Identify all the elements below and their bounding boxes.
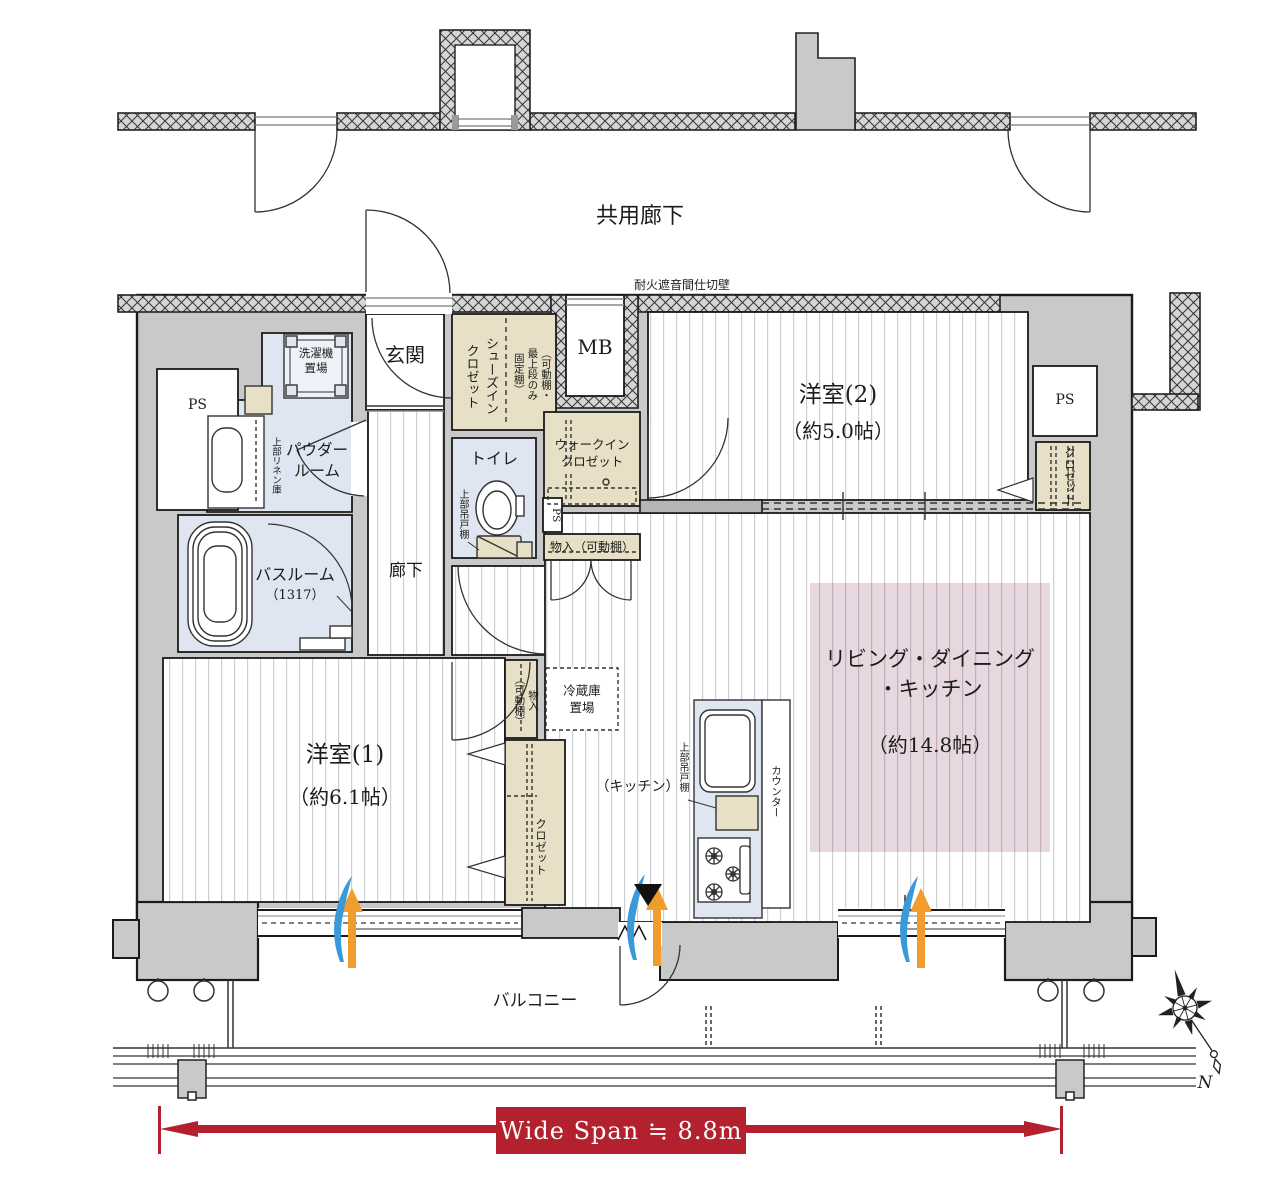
bathroom-size-label: （1317）: [225, 587, 365, 605]
compass-icon: [1148, 962, 1231, 1085]
closet-2-label: クロゼット: [524, 812, 546, 882]
western-room-2-size: （約5.0帖）: [738, 418, 938, 445]
closet-right-label: クロゼット: [1049, 444, 1075, 508]
firewall-label: 耐火遮音間仕切壁: [622, 277, 742, 293]
shared-corridor-label: 共用廊下: [565, 202, 715, 232]
storage-2-label: 物入 （可動棚）: [503, 664, 539, 736]
walk-in-closet-label: ウォークイン クロゼット: [544, 437, 640, 471]
floor-western-room-1: [163, 658, 505, 902]
entrance-front-opening: [366, 293, 452, 314]
hallway-label: 廊下: [368, 560, 444, 583]
rail-posts: [178, 1060, 1084, 1100]
ps-small-label: PS: [544, 500, 561, 530]
upper-cabinet-kitchen-label: 上部吊戸棚: [672, 728, 687, 806]
western-room-1-size: （約6.1帖）: [250, 784, 440, 811]
wall-stub-bottom: [522, 908, 620, 938]
drain-circles: [148, 978, 1104, 1001]
bathroom-label: バスルーム: [225, 564, 365, 586]
ldk-label: リビング・ダイニング ・キッチン: [820, 644, 1040, 705]
balcony-partitions: [228, 980, 1067, 1048]
western-room-1-label: 洋室(1): [250, 740, 440, 771]
ldk-size-label: （約14.8帖）: [820, 732, 1040, 759]
counter-label: カウンター: [765, 750, 781, 832]
compass-north-label: N: [1190, 1072, 1220, 1095]
ps-right-label: PS: [1033, 391, 1097, 410]
floor-plan-drawing: [0, 0, 1280, 1179]
powder-room-label: パウダー ルーム: [272, 440, 362, 482]
floor-hallway: [368, 410, 444, 655]
ldk-rug: [810, 583, 1050, 852]
shoes-closet-note: （可動棚・ 最上段のみ 固定棚）: [502, 318, 552, 430]
refrigerator-space-label: 冷蔵庫 置場: [546, 683, 618, 717]
entrance-label: 玄関: [366, 342, 444, 369]
wide-span-text: Wide Span ≒ 8.8m: [500, 1117, 743, 1145]
washer-space-label: 洗濯機 置場: [284, 346, 348, 376]
balcony-structures: [113, 978, 1196, 1100]
floor-plan-page: 共用廊下 耐火遮音間仕切壁 MB 玄関 シューズイン クロゼット （可動棚・ 最…: [0, 0, 1280, 1179]
shoes-closet-label: シューズイン クロゼット: [456, 324, 500, 428]
shared-corridor-wall: [118, 30, 1196, 130]
meter-box-label: MB: [566, 334, 624, 361]
upper-cabinet-toilet-label: 上部吊戸棚: [452, 478, 467, 550]
storage-shelf-label: 物入（可動棚）: [540, 539, 644, 555]
western-room-2-label: 洋室(2): [738, 380, 938, 411]
balcony-label: バルコニー: [480, 990, 590, 1013]
ps-left-label: PS: [157, 396, 238, 415]
toilet-label: トイレ: [452, 448, 536, 470]
floor-hallway-2: [452, 566, 545, 655]
wide-span-banner: Wide Span ≒ 8.8m: [496, 1107, 746, 1154]
